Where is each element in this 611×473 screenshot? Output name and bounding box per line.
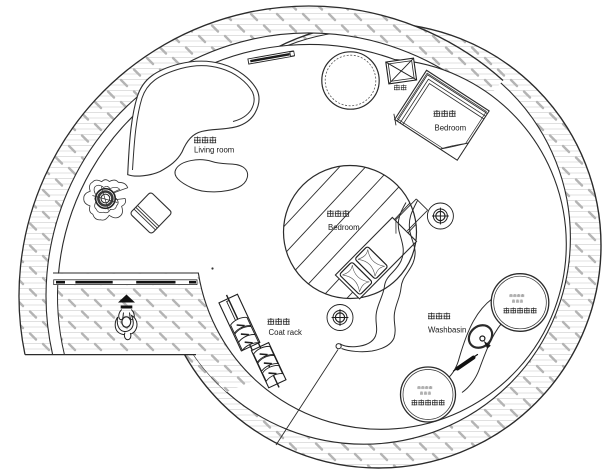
svg-text:Washbasin: Washbasin bbox=[428, 326, 466, 335]
svg-text:Coat rack: Coat rack bbox=[269, 328, 302, 337]
svg-text:Bedroom: Bedroom bbox=[435, 124, 467, 133]
svg-text:Living room: Living room bbox=[194, 146, 234, 155]
svg-text:Bedroom: Bedroom bbox=[328, 223, 360, 232]
